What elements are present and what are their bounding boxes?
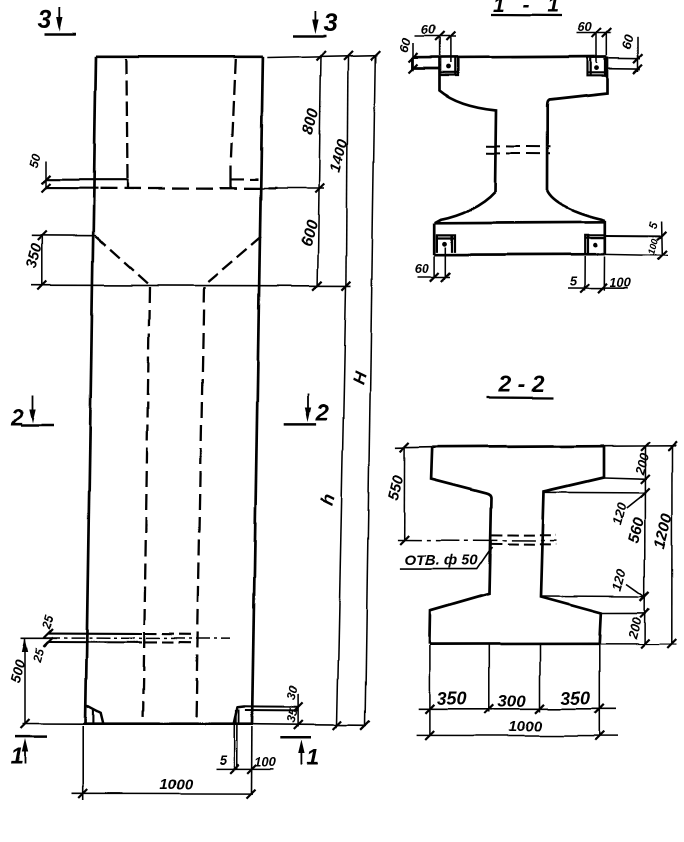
svg-text:2: 2 — [315, 400, 329, 426]
svg-text:5: 5 — [570, 274, 578, 289]
svg-text:100: 100 — [610, 275, 632, 290]
svg-text:1: 1 — [306, 744, 319, 770]
svg-text:100: 100 — [254, 754, 276, 769]
svg-text:3: 3 — [324, 9, 338, 37]
svg-text:60: 60 — [421, 23, 436, 38]
svg-text:60: 60 — [415, 261, 430, 276]
svg-text:3: 3 — [38, 6, 52, 34]
svg-text:2: 2 — [10, 404, 24, 430]
svg-text:1000: 1000 — [159, 776, 193, 793]
svg-text:2 - 2: 2 - 2 — [497, 371, 544, 397]
svg-text:5: 5 — [219, 753, 227, 768]
svg-text:1000: 1000 — [509, 718, 543, 735]
svg-text:350: 350 — [437, 689, 467, 709]
svg-text:60: 60 — [578, 20, 593, 35]
svg-text:1: 1 — [11, 743, 24, 769]
svg-text:ОТВ. ф 50: ОТВ. ф 50 — [404, 552, 479, 569]
svg-text:350: 350 — [560, 689, 590, 709]
svg-text:300: 300 — [498, 692, 527, 711]
